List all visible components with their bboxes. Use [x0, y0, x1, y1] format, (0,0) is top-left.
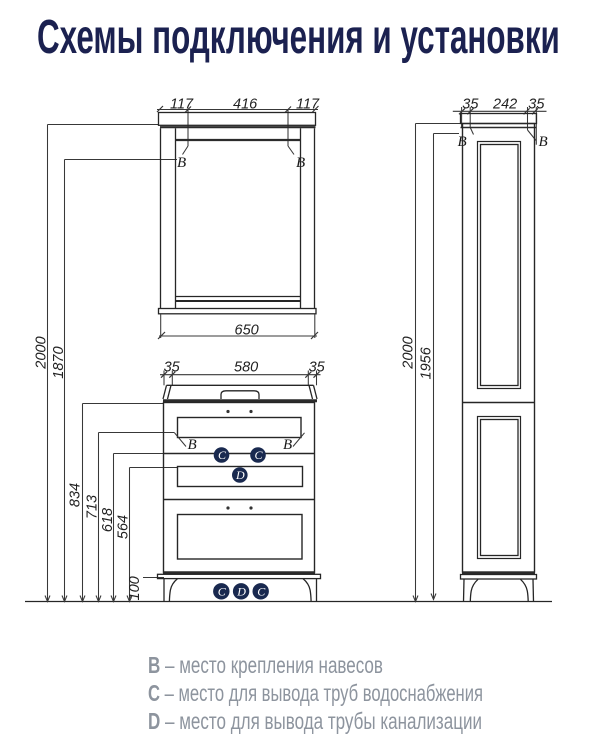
svg-text:35: 35	[528, 97, 545, 113]
svg-text:B: B	[188, 437, 197, 453]
svg-text:564: 564	[116, 515, 132, 539]
svg-text:416: 416	[233, 97, 258, 113]
svg-text:D: D	[235, 468, 245, 482]
svg-text:1956: 1956	[419, 346, 435, 379]
svg-text:618: 618	[100, 508, 116, 532]
svg-text:117: 117	[170, 97, 194, 113]
svg-text:35: 35	[164, 360, 181, 376]
svg-text:35: 35	[462, 97, 479, 113]
svg-text:650: 650	[235, 323, 259, 339]
svg-text:2000: 2000	[34, 336, 50, 369]
svg-text:C: C	[218, 448, 227, 462]
svg-text:B: B	[283, 437, 292, 453]
svg-text:D: D	[236, 584, 246, 598]
svg-text:713: 713	[85, 495, 101, 519]
svg-text:C: C	[218, 584, 227, 598]
svg-text:35: 35	[309, 360, 326, 376]
svg-text:100: 100	[127, 576, 143, 600]
svg-text:117: 117	[296, 97, 320, 113]
svg-text:580: 580	[234, 360, 258, 376]
svg-text:B: B	[177, 155, 186, 171]
svg-text:B: B	[539, 134, 548, 150]
svg-text:C: C	[255, 448, 264, 462]
svg-text:C: C	[257, 584, 266, 598]
svg-text:834: 834	[68, 483, 84, 507]
svg-text:1870: 1870	[51, 346, 67, 378]
svg-text:242: 242	[492, 97, 517, 113]
svg-text:2000: 2000	[401, 336, 417, 369]
